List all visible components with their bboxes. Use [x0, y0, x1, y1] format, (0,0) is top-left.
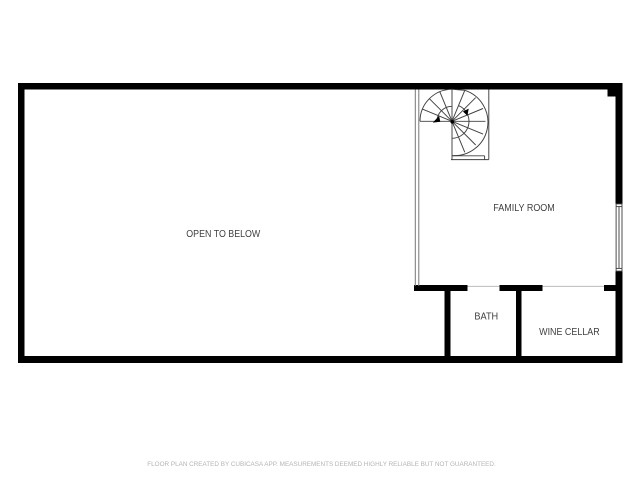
svg-text:WINE CELLAR: WINE CELLAR: [539, 327, 600, 338]
svg-text:BATH: BATH: [474, 312, 498, 323]
svg-text:FLOOR PLAN CREATED BY CUBICASA: FLOOR PLAN CREATED BY CUBICASA APP. MEAS…: [147, 461, 496, 468]
svg-text:FAMILY ROOM: FAMILY ROOM: [493, 203, 555, 214]
svg-text:OPEN TO BELOW: OPEN TO BELOW: [186, 229, 260, 240]
